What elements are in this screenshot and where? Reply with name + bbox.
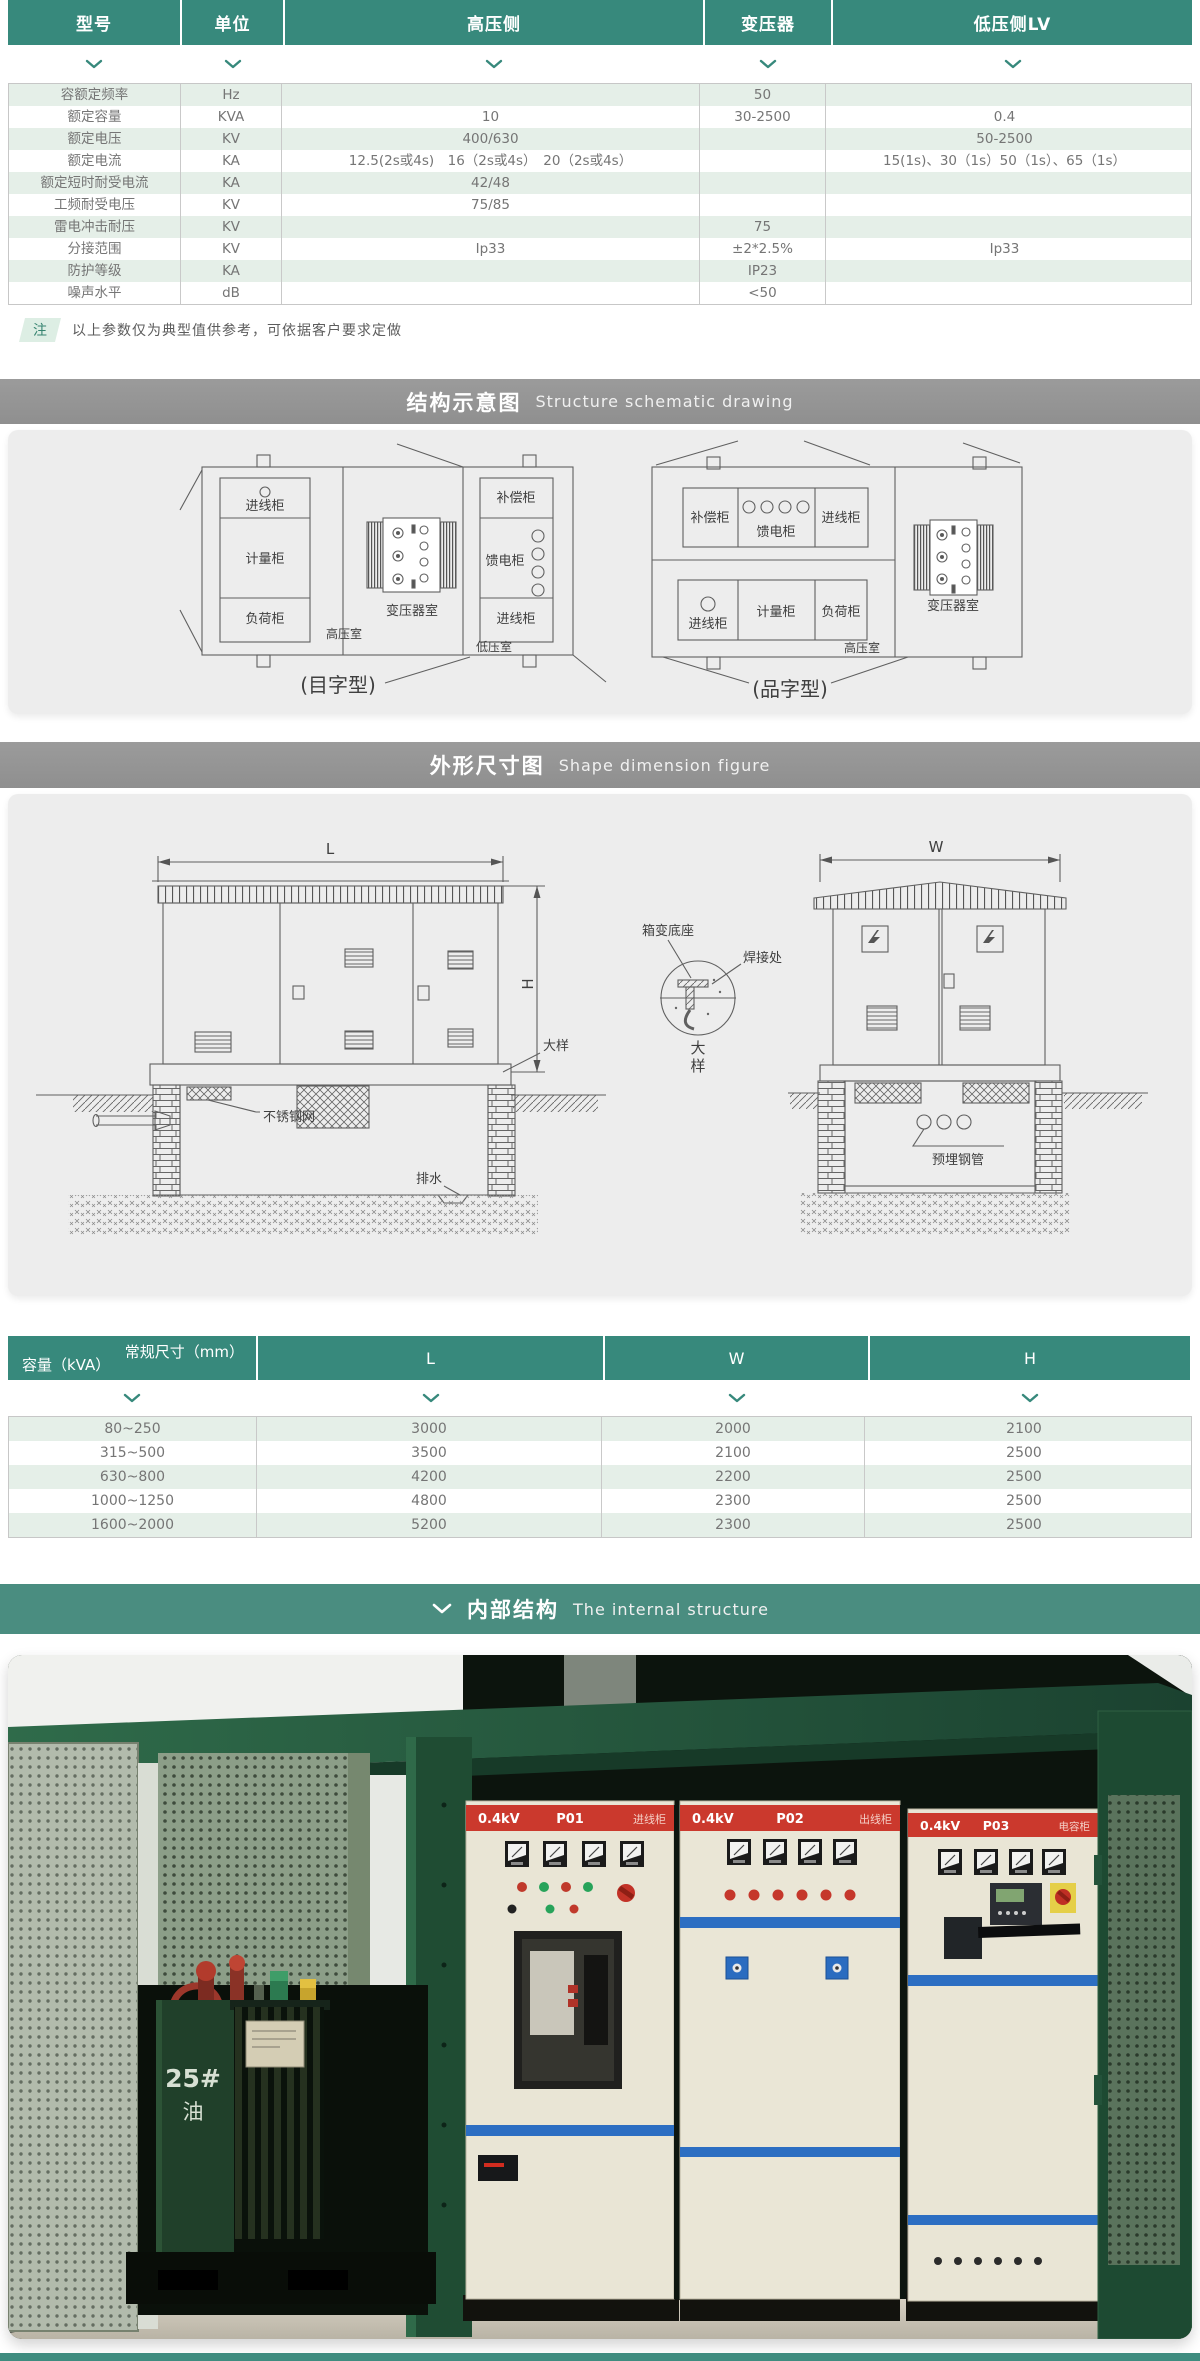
- lv-cell: [826, 260, 1183, 282]
- hv-cell: [282, 216, 700, 238]
- schematic-label: 变压器室: [927, 598, 979, 614]
- w-cell: 2200: [602, 1465, 865, 1489]
- indicator-light: [546, 1905, 555, 1914]
- table-row: 630~800420022002500: [9, 1465, 1191, 1489]
- panel-meter: [763, 1839, 787, 1865]
- lv-cell: 15(1s)、30（1s）50（1s）、65（1s）: [826, 150, 1183, 172]
- panel-meter: [620, 1841, 644, 1867]
- panel-meter: [505, 1841, 529, 1867]
- panel-gap: [674, 1805, 680, 2299]
- table-row: 噪声水平dB<50: [9, 282, 1191, 304]
- schematic-label: 进线柜: [496, 612, 535, 627]
- panel-stripe: [466, 2125, 674, 2136]
- h-cell: 2100: [865, 1417, 1183, 1441]
- section-title-zh: 结构示意图: [407, 387, 522, 417]
- label-weld: 焊接处: [743, 950, 782, 966]
- table-row: 分接范围KVIp33±2*2.5%Ip33: [9, 238, 1191, 260]
- l-cell: 5200: [257, 1513, 602, 1537]
- schematic-label: 馈电柜: [756, 525, 795, 540]
- dimension-drawing-panel: L W H 不锈钢网 排水 大样 箱变底座 焊接处 大 样 预埋钢管: [8, 794, 1192, 1296]
- indicator-light: [749, 1890, 760, 1901]
- schematic-label: 补偿柜: [690, 511, 729, 526]
- schematic-caption: (品字型): [752, 677, 828, 701]
- detail-caption: 样: [690, 1057, 705, 1075]
- table-row: 1000~1250480023002500: [9, 1489, 1191, 1513]
- dims-table-body: 80~250300020002100 315~500350021002500 6…: [8, 1416, 1192, 1538]
- internal-photo-svg: 25# 油 0.4kV P01 进线柜: [8, 1655, 1192, 2339]
- footer-accent-bar: [0, 2353, 1200, 2361]
- schematic-label: 变压器室: [386, 603, 438, 619]
- lv-cell: Ip33: [826, 238, 1183, 260]
- table-row: 315~500350021002500: [9, 1441, 1191, 1465]
- panel-code-label: P03: [983, 1818, 1010, 1833]
- panel-kv-label: 0.4kV: [920, 1818, 960, 1833]
- left-elevation: [36, 856, 606, 1235]
- section-title-en: The internal structure: [573, 1600, 769, 1619]
- h-cell: 2500: [865, 1465, 1183, 1489]
- section-header-internal: 内部结构 The internal structure: [0, 1584, 1200, 1634]
- panel-kv-label: 0.4kV: [692, 1812, 734, 1827]
- chevron-down-icon: [8, 1380, 256, 1416]
- w-cell: 2100: [602, 1441, 865, 1465]
- panel-code-label: P01: [556, 1812, 584, 1827]
- h-cell: 2500: [865, 1441, 1183, 1465]
- schematic-label: 负荷柜: [245, 612, 284, 627]
- panel-p03: 0.4kV P03 电容柜: [906, 1809, 1098, 2321]
- tx-cell: [700, 194, 826, 216]
- l-cell: 3000: [257, 1417, 602, 1441]
- l-cell: 4800: [257, 1489, 602, 1513]
- capacity-cell: 630~800: [9, 1465, 257, 1489]
- h-cell: 2500: [865, 1489, 1183, 1513]
- chevron-down-icon: [258, 1380, 603, 1416]
- table-row: 额定电流KA12.5(2s或4s) 16（2s或4s） 20（2s或4s）15(…: [9, 150, 1191, 172]
- section-title-en: Shape dimension figure: [559, 756, 771, 775]
- dims-chevron-row: [8, 1380, 1192, 1416]
- lv-cell: [826, 282, 1183, 304]
- panel-p02: 0.4kV P02 出线柜: [680, 1801, 900, 2321]
- unit-cell: KA: [181, 172, 282, 194]
- internal-structure-photo: 25# 油 0.4kV P01 进线柜: [8, 1655, 1192, 2339]
- param-cell: 噪声水平: [9, 282, 181, 304]
- dims-corner-top: 常规尺寸（mm）: [125, 1341, 244, 1362]
- spec-col-transformer: 变压器: [705, 0, 831, 45]
- spec-table-body: 容额定频率Hz50 额定容量KVA1030-25000.4 额定电压KV400/…: [8, 83, 1192, 305]
- table-row: 1600~2000520023002500: [9, 1513, 1191, 1537]
- table-row: 80~250300020002100: [9, 1417, 1191, 1441]
- indicator-light: [845, 1890, 856, 1901]
- indicator-light: [583, 1882, 593, 1892]
- schematic-labels: 进线柜 计量柜 负荷柜 高压室 变压器室 补偿柜 馈电柜 进线柜 低压室 (目字…: [245, 491, 979, 701]
- lv-cell: 50-2500: [826, 128, 1183, 150]
- schematic-left-lines: [180, 444, 606, 683]
- param-cell: 额定电压: [9, 128, 181, 150]
- panel-meter: [833, 1839, 857, 1865]
- panel-name-label: 进线柜: [633, 1812, 666, 1826]
- unit-cell: KA: [181, 260, 282, 282]
- tx-cell: [700, 128, 826, 150]
- lv-cell: [826, 194, 1183, 216]
- indicator-light: [561, 1882, 571, 1892]
- unit-cell: KV: [181, 238, 282, 260]
- table-note: 注 以上参数仅为典型值供参考，可依据客户要求定做: [22, 317, 1192, 343]
- unit-cell: KV: [181, 128, 282, 150]
- capacity-cell: 80~250: [9, 1417, 257, 1441]
- dims-corner-bottom: 容量（kVA）: [22, 1354, 110, 1375]
- chevron-down-icon: [431, 1603, 453, 1615]
- l-cell: 4200: [257, 1465, 602, 1489]
- tx-cell: 30-2500: [700, 106, 826, 128]
- label-mesh: 不锈钢网: [263, 1110, 315, 1125]
- chevron-down-icon: [285, 45, 703, 83]
- schematic-label: 高压室: [326, 626, 362, 641]
- panel-meter: [1009, 1849, 1033, 1875]
- note-badge-label: 注: [33, 320, 47, 340]
- lv-cell: [826, 172, 1183, 194]
- note-badge: 注: [19, 318, 61, 342]
- unit-cell: KA: [181, 150, 282, 172]
- note-text: 以上参数仅为典型值供参考，可依据客户要求定做: [72, 320, 402, 340]
- panel-p01: 0.4kV P01 进线柜: [463, 1801, 679, 2321]
- chevron-down-icon: [870, 1380, 1190, 1416]
- dim-letter-h: H: [519, 978, 537, 989]
- spec-col-lv: 低压侧LV: [833, 0, 1192, 45]
- table-row: 雷电冲击耐压KV75: [9, 216, 1191, 238]
- chevron-down-icon: [833, 45, 1192, 83]
- schematic-right-lines: [652, 441, 1022, 683]
- unit-cell: KV: [181, 216, 282, 238]
- table-row: 额定容量KVA1030-25000.4: [9, 106, 1191, 128]
- hv-cell: [282, 260, 700, 282]
- section-title-en: Structure schematic drawing: [536, 392, 794, 411]
- section-header-dimension: 外形尺寸图 Shape dimension figure: [0, 742, 1200, 788]
- w-cell: 2000: [602, 1417, 865, 1441]
- label-drain: 排水: [416, 1172, 442, 1187]
- w-cell: 2300: [602, 1513, 865, 1537]
- indicator-light: [725, 1890, 736, 1901]
- spec-table-header: 型号 单位 高压侧 变压器 低压侧LV: [8, 0, 1192, 45]
- schematic-label: 低压室: [476, 639, 512, 654]
- schematic-label: 高压室: [844, 640, 880, 655]
- param-cell: 防护等级: [9, 260, 181, 282]
- base-detail: [660, 940, 741, 1035]
- page: 型号 单位 高压侧 变压器 低压侧LV 容额定频率Hz50 额定容量KVA103…: [0, 0, 1200, 2361]
- hv-cell: 12.5(2s或4s) 16（2s或4s） 20（2s或4s）: [282, 150, 700, 172]
- param-cell: 额定容量: [9, 106, 181, 128]
- panel-stripe: [680, 2147, 900, 2157]
- param-cell: 工频耐受电压: [9, 194, 181, 216]
- tx-cell: 50: [700, 84, 826, 106]
- right-elevation: [788, 854, 1148, 1235]
- param-cell: 容额定频率: [9, 84, 181, 106]
- panel-meter: [974, 1849, 998, 1875]
- chevron-down-icon: [605, 1380, 868, 1416]
- detail-caption: 大: [690, 1039, 705, 1057]
- dims-table: 常规尺寸（mm） 容量（kVA） L W H 80~25030002000210…: [8, 1336, 1192, 1538]
- panel-meter: [582, 1841, 606, 1867]
- panel-meter: [543, 1841, 567, 1867]
- tx-cell: <50: [700, 282, 826, 304]
- tx-cell: IP23: [700, 260, 826, 282]
- panel-meter: [1042, 1849, 1066, 1875]
- section-title-zh: 外形尺寸图: [430, 750, 545, 780]
- hv-cell: 10: [282, 106, 700, 128]
- schematic-label: 进线柜: [245, 499, 284, 514]
- param-cell: 额定短时耐受电流: [9, 172, 181, 194]
- dims-corner-cell: 常规尺寸（mm） 容量（kVA）: [8, 1336, 256, 1380]
- tx-cell: 75: [700, 216, 826, 238]
- hv-cell: 400/630: [282, 128, 700, 150]
- param-cell: 雷电冲击耐压: [9, 216, 181, 238]
- panel-stripe: [908, 2215, 1098, 2225]
- schematic-label: 进线柜: [688, 617, 727, 632]
- schematic-label: 负荷柜: [821, 605, 860, 620]
- lv-cell: 0.4: [826, 106, 1183, 128]
- capacity-cell: 1000~1250: [9, 1489, 257, 1513]
- schematic-label: 计量柜: [756, 605, 795, 620]
- dim-letter-l: L: [326, 840, 335, 858]
- param-cell: 分接范围: [9, 238, 181, 260]
- oil-mark-line1: 25#: [165, 2064, 221, 2093]
- spec-chevron-row: [8, 45, 1192, 83]
- l-cell: 3500: [257, 1441, 602, 1465]
- indicator-light: [797, 1890, 808, 1901]
- param-cell: 额定电流: [9, 150, 181, 172]
- panel-code-label: P02: [776, 1812, 804, 1827]
- panel-name-label: 电容柜: [1059, 1820, 1091, 1833]
- structure-schematic-svg: 进线柜 计量柜 负荷柜 高压室 变压器室 补偿柜 馈电柜 进线柜 低压室 (目字…: [8, 430, 1192, 714]
- indicator-light: [517, 1882, 527, 1892]
- panel-stripe: [908, 1975, 1098, 1986]
- oil-transformer: 25# 油: [126, 1955, 436, 2315]
- table-row: 防护等级KAIP23: [9, 260, 1191, 282]
- dims-col-w: W: [605, 1336, 868, 1380]
- lv-cell: [826, 216, 1183, 238]
- table-row: 额定短时耐受电流KA42/48: [9, 172, 1191, 194]
- dims-col-l: L: [258, 1336, 603, 1380]
- schematic-label: 进线柜: [821, 511, 860, 526]
- schematic-label: 计量柜: [245, 552, 284, 567]
- indicator-light: [773, 1890, 784, 1901]
- dims-table-header: 常规尺寸（mm） 容量（kVA） L W H: [8, 1336, 1192, 1380]
- indicator-light: [539, 1882, 549, 1892]
- spec-col-hv: 高压侧: [285, 0, 703, 45]
- schematic-label: 补偿柜: [496, 491, 535, 506]
- label-base: 箱变底座: [642, 923, 694, 939]
- section-header-structure: 结构示意图 Structure schematic drawing: [0, 379, 1200, 424]
- right-open-door: [1094, 1711, 1192, 2339]
- schematic-caption: (目字型): [300, 673, 376, 697]
- chevron-down-icon: [182, 45, 283, 83]
- indicator-light: [508, 1905, 517, 1914]
- panel-kv-label: 0.4kV: [478, 1812, 520, 1827]
- capacity-cell: 315~500: [9, 1441, 257, 1465]
- panel-meter: [798, 1839, 822, 1865]
- lv-cell: [826, 84, 1183, 106]
- wall-gap: [370, 1775, 410, 2015]
- table-row: 容额定频率Hz50: [9, 84, 1191, 106]
- w-cell: 2300: [602, 1489, 865, 1513]
- tx-cell: [700, 150, 826, 172]
- capacity-cell: 1600~2000: [9, 1513, 257, 1537]
- panel-gap: [900, 1805, 908, 2299]
- structure-drawing-panel: 进线柜 计量柜 负荷柜 高压室 变压器室 补偿柜 馈电柜 进线柜 低压室 (目字…: [8, 430, 1192, 714]
- panel-stripe: [680, 1917, 900, 1928]
- spec-col-model: 型号: [8, 0, 180, 45]
- tx-cell: [700, 172, 826, 194]
- h-cell: 2500: [865, 1513, 1183, 1537]
- nameplate: [246, 2021, 304, 2067]
- indicator-light: [570, 1905, 579, 1914]
- hv-cell: Ip33: [282, 238, 700, 260]
- dims-col-h: H: [870, 1336, 1190, 1380]
- oil-mark-line2: 油: [183, 2100, 204, 2124]
- unit-cell: KV: [181, 194, 282, 216]
- spec-col-unit: 单位: [182, 0, 283, 45]
- hv-cell: 42/48: [282, 172, 700, 194]
- breaker-body: [944, 1917, 982, 1959]
- panel-name-label: 出线柜: [859, 1812, 892, 1826]
- chevron-down-icon: [8, 45, 180, 83]
- chevron-down-icon: [705, 45, 831, 83]
- label-pipes: 预埋钢管: [932, 1153, 984, 1168]
- unit-cell: KVA: [181, 106, 282, 128]
- hv-cell: 75/85: [282, 194, 700, 216]
- unit-cell: dB: [181, 282, 282, 304]
- indicator-light: [821, 1890, 832, 1901]
- unit-cell: Hz: [181, 84, 282, 106]
- hv-cell: [282, 282, 700, 304]
- table-row: 额定电压KV400/63050-2500: [9, 128, 1191, 150]
- panel-meter: [938, 1849, 962, 1875]
- section-title-zh: 内部结构: [467, 1594, 559, 1624]
- table-row: 工频耐受电压KV75/85: [9, 194, 1191, 216]
- dimension-figure-svg: L W H 不锈钢网 排水 大样 箱变底座 焊接处 大 样 预埋钢管: [8, 794, 1192, 1296]
- hv-cell: [282, 84, 700, 106]
- panel-meter: [727, 1839, 751, 1865]
- schematic-label: 馈电柜: [485, 554, 524, 569]
- label-detail: 大样: [543, 1039, 569, 1054]
- spec-table: 型号 单位 高压侧 变压器 低压侧LV 容额定频率Hz50 额定容量KVA103…: [8, 0, 1192, 343]
- tx-cell: ±2*2.5%: [700, 238, 826, 260]
- dim-letter-w: W: [929, 838, 944, 856]
